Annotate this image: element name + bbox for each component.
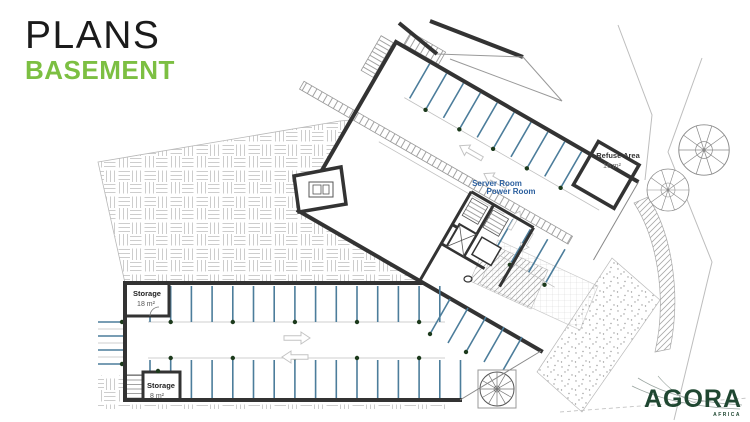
refuse-area-label: Refuse Area bbox=[596, 151, 640, 160]
slide: PLANS BASEMENT bbox=[0, 0, 750, 422]
logo-text: AGORA bbox=[644, 387, 742, 412]
company-logo: AGORA AFRICA bbox=[628, 374, 748, 422]
spiral-stair bbox=[478, 370, 516, 408]
tree-icon bbox=[647, 125, 729, 211]
logo-region-text: AFRICA bbox=[713, 412, 741, 418]
refuse-area-size: 16 m² bbox=[603, 163, 622, 170]
slide-header: PLANS BASEMENT bbox=[25, 16, 175, 83]
storage-bottom-size: 8 m² bbox=[150, 393, 165, 400]
storage-top-label: Storage bbox=[133, 289, 161, 298]
storage-top-size: 18 m² bbox=[137, 301, 156, 308]
utility-room bbox=[294, 167, 346, 212]
page-title: PLANS bbox=[25, 16, 175, 57]
storage-room-top bbox=[125, 283, 169, 316]
power-room-label: Power Room bbox=[487, 187, 536, 196]
page-subtitle: BASEMENT bbox=[25, 57, 175, 83]
storage-bottom-label: Storage bbox=[147, 381, 175, 390]
